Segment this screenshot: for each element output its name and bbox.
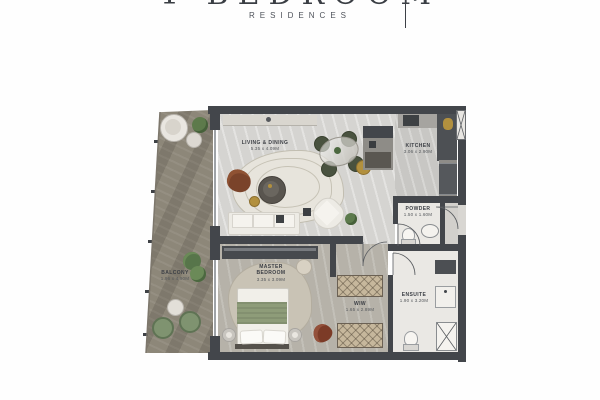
title-divider-rule [405,0,406,28]
sliding-glass-door-top [214,130,216,226]
page-title: 1 BEDROOM [140,0,460,10]
sofa-cushion-1 [232,214,253,228]
bed-green-throw [237,302,287,324]
balcony-plant-top-icon [192,117,208,133]
coffee-table-gold-decor-icon [268,184,272,188]
shower-tray [436,322,457,351]
sofa-throw-pillow [276,215,284,223]
wall-hall-powder-top [393,196,458,203]
console-decor-icon [266,117,271,122]
bed-pillow-left [240,329,264,344]
wall-wiw-stub [330,244,336,277]
room-label-kitchen: KITCHEN 3.06 x 2.90M [398,143,438,155]
page-title-cropped: 1 BEDROOM [140,0,460,10]
side-table-black [303,208,311,216]
floorplan-page: 1 BEDROOM RESIDENCES [0,0,600,400]
room-label-powder: POWDER 1.50 x 1.60M [398,206,438,218]
sofa-cushion-2 [253,214,274,228]
balcony-side-table-top [186,132,202,148]
balcony-chair-right [179,311,201,333]
living-plant-icon [345,213,357,225]
wall-ensuite-left-lower [388,275,393,353]
wall-powder-bottom [388,244,458,251]
sliding-glass-door-bottom [214,260,216,336]
balcony-mullion-tick-3 [148,240,153,243]
balcony-mullion-tick-2 [151,190,156,193]
wall-living-bedroom-divider [215,236,363,244]
gold-side-table [249,196,260,207]
wall-powder-right [440,196,445,249]
kitchen-island-wall-stub [363,126,393,138]
services-shaft [456,110,466,140]
bed-headboard [235,344,289,349]
island-appliance [365,152,391,168]
room-label-balcony: BALCONY 1.96 x 4.90M [150,270,200,282]
ensuite-toilet-tank [403,344,419,351]
bed-pillow-right [263,329,287,344]
room-label-wiw: WIW 1.65 x 2.89M [340,301,380,313]
room-label-living: LIVING & DINING 5.35 x 4.09M [233,140,297,152]
fridge [439,163,457,195]
wall-balcony-stub-mid [210,226,220,260]
wiw-closet-bottom [337,323,383,348]
balcony-mullion-tick-4 [145,290,150,293]
wall-balcony-stub-bottom [210,336,220,360]
nightstand-lamp-left-icon [222,328,236,342]
bedroom-wardrobe-shelf [224,248,316,251]
entry-door-gap [458,205,466,235]
ensuite-vanity-shelf [435,260,456,274]
wall-bottom [208,352,466,360]
cooktop [403,115,419,126]
powder-sink [421,224,439,238]
nightstand-lamp-right-icon [288,328,302,342]
wall-top [208,106,466,114]
island-sink-icon [369,141,376,148]
wiw-closet-top [337,275,383,297]
dining-centerpiece-plant-icon [334,147,341,154]
wall-balcony-stub-top [210,106,220,130]
bedroom-pouf [296,259,312,275]
balcony-mullion-tick-5 [143,333,148,336]
room-label-ensuite: ENSUITE 1.90 x 3.20M [394,292,434,304]
page-subtitle: RESIDENCES [140,11,460,20]
ensuite-faucet-icon [444,290,447,293]
balcony-chair-left [152,317,174,339]
balcony-daybed-cushion [165,119,181,135]
room-label-master: MASTER BEDROOM 3.35 x 3.09M [250,264,292,282]
kitchen-gold-sink-icon [443,118,453,130]
balcony-mullion-tick-1 [154,140,159,143]
